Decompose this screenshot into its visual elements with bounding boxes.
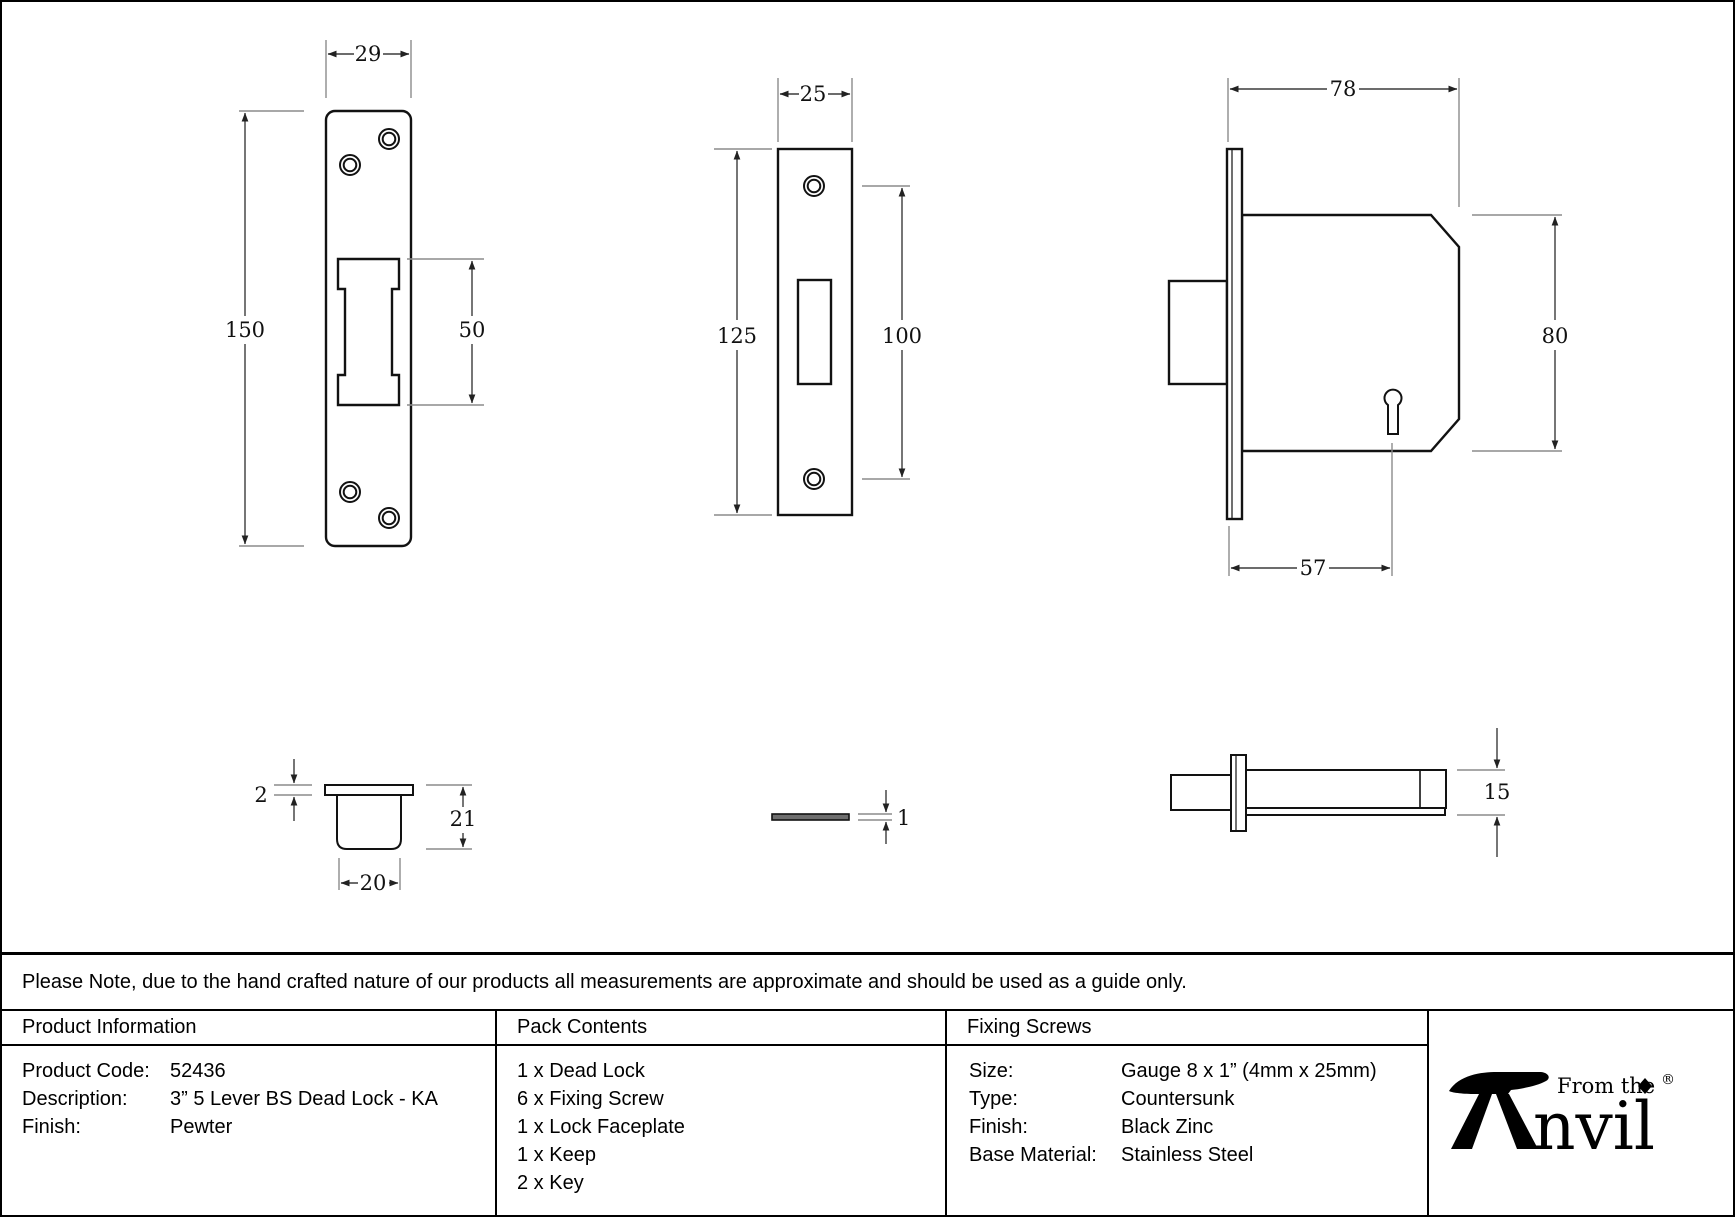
dim-keep-lip: 2 bbox=[254, 783, 267, 807]
dim-faceplate-width: 25 bbox=[800, 82, 827, 106]
list-item: 2 x Key bbox=[517, 1169, 945, 1197]
pack-contents-cell: 1 x Dead Lock 6 x Fixing Screw 1 x Lock … bbox=[497, 1046, 945, 1197]
header-fixing-screws-label: Fixing Screws bbox=[967, 1016, 1091, 1039]
table-row: Size: Gauge 8 x 1” (4mm x 25mm) bbox=[969, 1057, 1427, 1085]
fixing-screws-cell: Size: Gauge 8 x 1” (4mm x 25mm) Type: Co… bbox=[947, 1046, 1427, 1169]
header-product-information-label: Product Information bbox=[22, 1016, 197, 1039]
dim-faceplate-thickness: 1 bbox=[897, 806, 910, 830]
spec-sheet-page: 29 150 50 25 bbox=[0, 0, 1735, 1217]
lock-bolt bbox=[1169, 281, 1227, 384]
finish-label: Finish: bbox=[22, 1113, 170, 1141]
list-item: 1 x Dead Lock bbox=[517, 1057, 945, 1085]
keep-lip bbox=[325, 785, 413, 795]
size-label: Size: bbox=[969, 1057, 1121, 1085]
product-code-label: Product Code: bbox=[22, 1057, 170, 1085]
lock-side-bolt bbox=[1171, 775, 1231, 810]
dim-faceplate-holes: 100 bbox=[882, 324, 922, 348]
dim-backset: 57 bbox=[1300, 556, 1327, 580]
type-value: Countersunk bbox=[1121, 1085, 1234, 1113]
dim-keep-depth: 21 bbox=[450, 807, 477, 831]
registered-mark: ® bbox=[1661, 1072, 1675, 1088]
dim-keep-cutout: 50 bbox=[459, 318, 486, 342]
header-product-information: Product Information bbox=[2, 1011, 495, 1046]
faceplate-front-view: 25 125 100 bbox=[714, 78, 922, 515]
dim-case-depth: 78 bbox=[1330, 77, 1357, 101]
list-item: 1 x Keep bbox=[517, 1141, 945, 1169]
table-row: Base Material: Stainless Steel bbox=[969, 1141, 1427, 1169]
dim-keep-width: 29 bbox=[355, 42, 382, 66]
header-pack-contents-label: Pack Contents bbox=[517, 1016, 647, 1039]
table-row: Finish: Black Zinc bbox=[969, 1113, 1427, 1141]
base-material-value: Stainless Steel bbox=[1121, 1141, 1253, 1169]
dim-lock-thickness: 15 bbox=[1484, 780, 1511, 804]
lock-side-faceplate bbox=[1231, 755, 1246, 831]
dim-keep-bottom-width: 20 bbox=[360, 871, 387, 895]
header-fixing-screws: Fixing Screws bbox=[947, 1011, 1427, 1046]
screw-finish-value: Black Zinc bbox=[1121, 1113, 1213, 1141]
keep-section-view: 2 21 20 bbox=[254, 759, 476, 895]
base-material-label: Base Material: bbox=[969, 1141, 1121, 1169]
technical-drawings: 29 150 50 25 bbox=[2, 2, 1733, 952]
brand-text: nvil bbox=[1533, 1088, 1655, 1161]
product-code-value: 52436 bbox=[170, 1057, 226, 1085]
faceplate-cutout bbox=[798, 280, 831, 384]
brand-logo-cell: nvil From the ® bbox=[1429, 1011, 1733, 1215]
table-row: Finish: Pewter bbox=[22, 1113, 495, 1141]
finish-value: Pewter bbox=[170, 1113, 232, 1141]
lock-side-view: 15 bbox=[1171, 728, 1510, 857]
list-item: 6 x Fixing Screw bbox=[517, 1085, 945, 1113]
list-item: 1 x Lock Faceplate bbox=[517, 1113, 945, 1141]
type-label: Type: bbox=[969, 1085, 1121, 1113]
lock-faceplate-edge bbox=[1227, 149, 1242, 519]
dim-case-height: 80 bbox=[1542, 324, 1569, 348]
lock-case-body bbox=[1242, 215, 1459, 451]
lock-side-base bbox=[1246, 808, 1445, 815]
size-value: Gauge 8 x 1” (4mm x 25mm) bbox=[1121, 1057, 1377, 1085]
product-information-cell: Product Code: 52436 Description: 3” 5 Le… bbox=[2, 1046, 495, 1141]
lock-case-view: 78 80 57 bbox=[1169, 77, 1568, 580]
faceplate-side-view: 1 bbox=[772, 790, 910, 844]
note-text: Please Note, due to the hand crafted nat… bbox=[22, 971, 1187, 994]
keep-front-view: 29 150 50 bbox=[225, 40, 485, 546]
dim-keep-height: 150 bbox=[225, 318, 265, 342]
description-label: Description: bbox=[22, 1085, 170, 1113]
faceplate-edge-strip bbox=[772, 814, 849, 820]
keyhole-icon bbox=[1385, 390, 1402, 434]
description-value: 3” 5 Lever BS Dead Lock - KA bbox=[170, 1085, 438, 1113]
lock-side-body bbox=[1246, 770, 1446, 808]
note-row: Please Note, due to the hand crafted nat… bbox=[2, 952, 1733, 1011]
header-pack-contents: Pack Contents bbox=[497, 1011, 945, 1046]
table-row: Product Code: 52436 bbox=[22, 1057, 495, 1085]
screw-finish-label: Finish: bbox=[969, 1113, 1121, 1141]
dim-faceplate-height: 125 bbox=[717, 324, 757, 348]
keep-cutout bbox=[338, 259, 399, 405]
from-the-anvil-logo: nvil From the ® bbox=[1445, 1065, 1717, 1161]
table-row: Type: Countersunk bbox=[969, 1085, 1427, 1113]
keep-tub bbox=[337, 795, 401, 849]
table-row: Description: 3” 5 Lever BS Dead Lock - K… bbox=[22, 1085, 495, 1113]
